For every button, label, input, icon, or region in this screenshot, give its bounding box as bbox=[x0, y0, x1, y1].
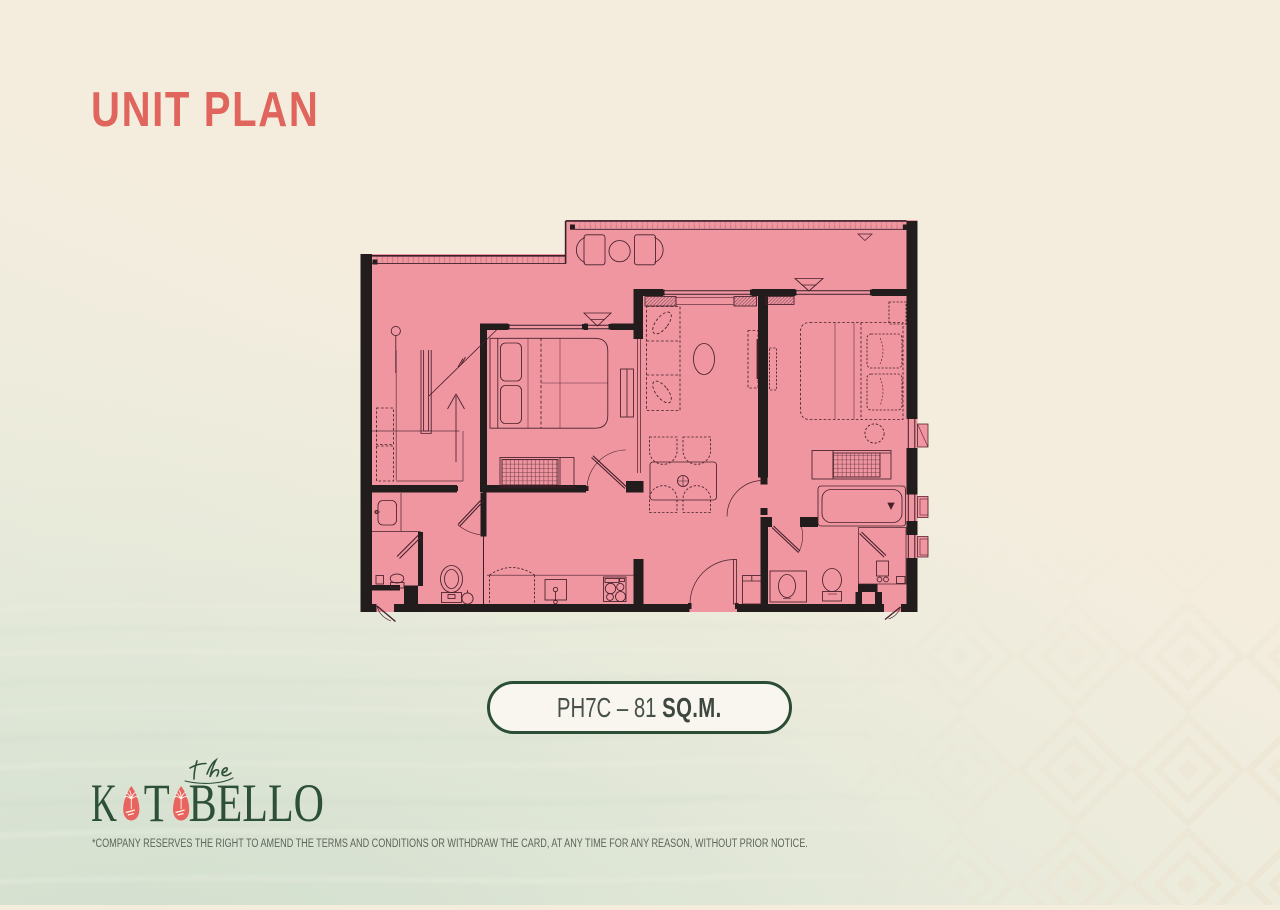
svg-text:BELLO: BELLO bbox=[189, 773, 324, 827]
svg-text:T: T bbox=[144, 773, 170, 827]
svg-text:K: K bbox=[91, 773, 117, 827]
